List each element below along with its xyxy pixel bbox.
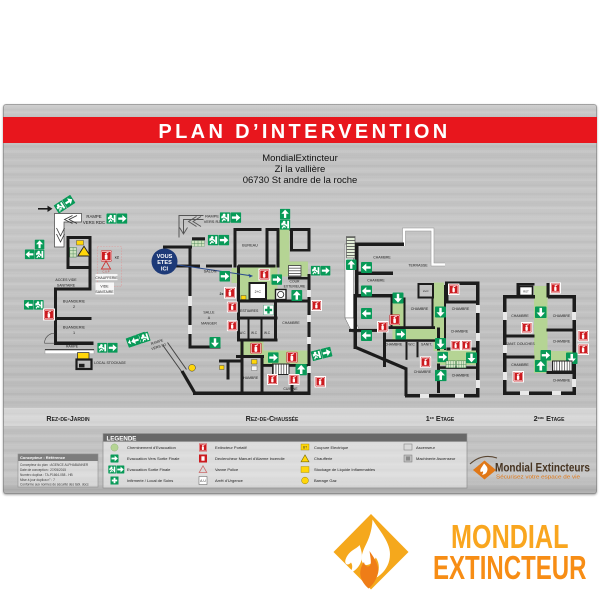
- svg-text:Barrage Gaz: Barrage Gaz: [314, 478, 337, 483]
- svg-text:SALON: SALON: [204, 270, 217, 274]
- svg-text:Concepteur du plan : AGENCE AL: Concepteur du plan : AGENCE ALPHABANNER: [20, 463, 89, 467]
- svg-text:x2: x2: [115, 256, 119, 260]
- svg-text:CHAMBRE: CHAMBRE: [367, 279, 385, 283]
- svg-text:VIDE: VIDE: [100, 285, 109, 289]
- svg-text:W.C: W.C: [251, 331, 258, 335]
- svg-text:Vanne Police: Vanne Police: [215, 467, 239, 472]
- svg-text:Machinerie Ascenseur: Machinerie Ascenseur: [416, 456, 456, 461]
- svg-text:RGT: RGT: [523, 290, 529, 294]
- svg-text:CHAMBRE: CHAMBRE: [451, 330, 469, 334]
- svg-text:C.U.P: C.U.P: [103, 269, 110, 273]
- svg-text:BUREAU: BUREAU: [242, 244, 258, 248]
- svg-text:SANIT.: SANIT.: [421, 343, 432, 347]
- svg-text:W.C: W.C: [239, 331, 246, 335]
- svg-text:CHAMBRE: CHAMBRE: [553, 314, 571, 318]
- svg-text:VOUS: VOUS: [157, 254, 173, 260]
- svg-text:SANIT. DOUCHES: SANIT. DOUCHES: [505, 342, 535, 346]
- svg-text:Infirmerie / Local de Soins: Infirmerie / Local de Soins: [127, 478, 173, 483]
- svg-text:BUANDERIE: BUANDERIE: [63, 300, 86, 304]
- svg-text:Declencheur Manuel d'Alarme In: Declencheur Manuel d'Alarme Incendie: [215, 456, 285, 461]
- svg-text:Cheminement d'Evacuation: Cheminement d'Evacuation: [127, 445, 176, 450]
- svg-text:LOCAL STOCKAGE: LOCAL STOCKAGE: [94, 361, 126, 365]
- svg-text:Stockage de Liquide Inflammabl: Stockage de Liquide Inflammables: [314, 467, 375, 472]
- svg-text:2+C: 2+C: [255, 290, 262, 294]
- svg-text:2: 2: [73, 305, 75, 309]
- svg-text:CHAMBRE: CHAMBRE: [511, 314, 529, 318]
- svg-text:Sécurisez votre espace de vie: Sécurisez votre espace de vie: [496, 475, 580, 481]
- svg-text:2x: 2x: [220, 292, 224, 296]
- svg-text:BT: BT: [303, 446, 307, 450]
- svg-text:A: A: [208, 316, 211, 320]
- svg-text:Coupure Electrique: Coupure Electrique: [314, 445, 349, 450]
- svg-text:Arrêt d'Urgence: Arrêt d'Urgence: [215, 478, 244, 483]
- svg-text:ICI: ICI: [161, 267, 169, 273]
- svg-text:1: 1: [73, 331, 75, 335]
- svg-text:SANITAIRE: SANITAIRE: [95, 290, 114, 294]
- svg-text:CHAUFFERIE: CHAUFFERIE: [95, 276, 118, 280]
- svg-text:A.U: A.U: [200, 479, 206, 483]
- svg-text:EXTERIEURE: EXTERIEURE: [284, 285, 306, 289]
- svg-text:Rez-de-Jardin: Rez-de-Jardin: [46, 414, 90, 423]
- svg-text:ACCES VIDE: ACCES VIDE: [55, 278, 77, 282]
- svg-text:CHAMBRE: CHAMBRE: [414, 370, 432, 374]
- svg-text:MANGER: MANGER: [201, 322, 217, 326]
- svg-text:COUR: COUR: [290, 280, 301, 284]
- svg-text:CUISINE: CUISINE: [283, 387, 298, 391]
- svg-text:Ascenseur: Ascenseur: [416, 445, 436, 450]
- svg-text:ETES: ETES: [157, 260, 172, 266]
- svg-text:SALLE: SALLE: [203, 311, 215, 315]
- svg-text:W.C: W.C: [264, 331, 271, 335]
- svg-text:TERRASSE: TERRASSE: [408, 264, 428, 268]
- svg-text:Evacuation Sortie Finale: Evacuation Sortie Finale: [127, 467, 171, 472]
- svg-text:1er Etage: 1er Etage: [426, 414, 455, 423]
- svg-text:RAMPE: RAMPE: [66, 345, 79, 349]
- svg-text:Evacuation Vers Sortie Finale: Evacuation Vers Sortie Finale: [127, 456, 180, 461]
- svg-text:CHAMBRE: CHAMBRE: [385, 343, 403, 347]
- svg-text:Conforme aux normes de sécurit: Conforme aux normes de sécurité des tabl…: [20, 482, 89, 486]
- svg-text:RAMPE: RAMPE: [86, 214, 101, 219]
- svg-text:SANITAIRE: SANITAIRE: [57, 283, 76, 287]
- svg-text:2+C: 2+C: [423, 289, 429, 293]
- svg-text:CHAMBRE: CHAMBRE: [452, 307, 470, 311]
- svg-text:VERS RJ: VERS RJ: [204, 219, 220, 224]
- svg-text:CHAMBRE: CHAMBRE: [452, 374, 470, 378]
- svg-text:Mise à jour duplica n° : 7: Mise à jour duplica n° : 7: [20, 478, 55, 482]
- svg-text:Date de conception : 27/05/201: Date de conception : 27/05/2015: [20, 468, 66, 472]
- svg-text:CHAMBRE: CHAMBRE: [282, 321, 300, 325]
- svg-text:VERS RDC: VERS RDC: [83, 220, 105, 225]
- svg-text:Extincteur Portatif: Extincteur Portatif: [215, 445, 247, 450]
- svg-text:CHAMBRE: CHAMBRE: [241, 376, 259, 380]
- svg-text:Numéro duplica : TA-P1664-058: Numéro duplica : TA-P1664-058 - HB: [20, 473, 73, 477]
- svg-text:BUANDERIE: BUANDERIE: [63, 326, 86, 330]
- svg-text:Chaufferie: Chaufferie: [314, 456, 333, 461]
- svg-text:Mondial Extincteurs: Mondial Extincteurs: [495, 463, 590, 475]
- svg-text:2eme Etage: 2eme Etage: [534, 414, 565, 423]
- svg-text:CHAMBRE: CHAMBRE: [553, 340, 571, 344]
- svg-text:W.C: W.C: [408, 343, 415, 347]
- svg-text:CHAMBRE: CHAMBRE: [411, 307, 429, 311]
- svg-text:VESTIAIRES: VESTIAIRES: [238, 309, 259, 313]
- svg-text:CHAMBRE: CHAMBRE: [511, 363, 529, 367]
- svg-text:RAMPE: RAMPE: [205, 214, 219, 219]
- svg-text:CHAMBRE: CHAMBRE: [373, 256, 391, 260]
- svg-text:CHAMBRE: CHAMBRE: [553, 379, 571, 383]
- svg-text:Rez-de-Chaussée: Rez-de-Chaussée: [246, 414, 299, 423]
- svg-text:EXTINCTEUR: EXTINCTEUR: [433, 550, 587, 587]
- svg-text:Concepteur : Référence: Concepteur : Référence: [20, 455, 66, 460]
